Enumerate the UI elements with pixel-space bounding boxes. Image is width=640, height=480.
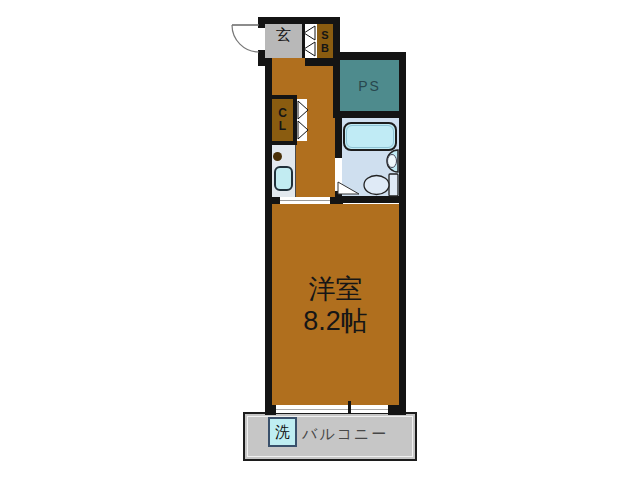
washing-machine-label: 洗 [275, 423, 290, 442]
pipe-space-label: PS [358, 78, 381, 94]
bathroom-door-opening [335, 158, 342, 191]
wall-entrance-left-lower [258, 50, 265, 66]
wall-pipe-space-left [333, 52, 340, 118]
bathtub-inner-line [346, 125, 394, 148]
wall-pipe-space-top [333, 52, 406, 60]
shoe-box: S B [317, 24, 333, 58]
wall-room-bottom-left [265, 405, 276, 415]
main-room-area: 8.2帖 [303, 305, 368, 337]
closet-letter-bottom: L [279, 120, 286, 133]
room-main: 洋室 8.2帖 [272, 204, 399, 405]
balcony-window-line [276, 409, 388, 410]
shoe-box-letter-bottom: B [321, 42, 329, 54]
bathtub [343, 122, 397, 151]
wall-main-right [399, 52, 406, 415]
room-pipe-space: PS [340, 60, 399, 111]
wall-kitchen-bottom-left [265, 197, 280, 204]
entry-door-arc-icon [232, 25, 259, 52]
closet-bifold-door-icon [297, 99, 307, 141]
balcony-window [276, 407, 388, 413]
wall-entrance-top [258, 17, 340, 24]
balcony-window-stile [348, 401, 351, 414]
washing-machine: 洗 [268, 417, 297, 447]
sliding-door-line [280, 200, 330, 201]
floorplan: S B PS 洋室 8.2帖 洗 バルコニー C L [0, 0, 640, 480]
shoebox-bifold-door-icon [305, 24, 317, 58]
wall-bathroom-bottom [335, 196, 406, 203]
wall-pipe-space-bottom [333, 111, 406, 118]
shoe-box-letter-top: S [321, 29, 328, 41]
wall-kitchen-bottom-right [330, 197, 343, 204]
wall-bathroom-left-upper [335, 111, 342, 158]
wall-entrance-left-upper [258, 17, 265, 28]
wall-room-bottom-right [388, 405, 406, 415]
balcony-label: バルコニー [302, 425, 402, 444]
genkan-label: 玄 [265, 26, 302, 45]
wall-main-left [265, 58, 272, 415]
stove-burner-icon [273, 152, 282, 161]
kitchen-sink [274, 166, 293, 191]
closet-cl: C L [272, 99, 293, 141]
kitchen-room-sliding-door [280, 197, 330, 204]
main-room-name: 洋室 [309, 273, 363, 305]
